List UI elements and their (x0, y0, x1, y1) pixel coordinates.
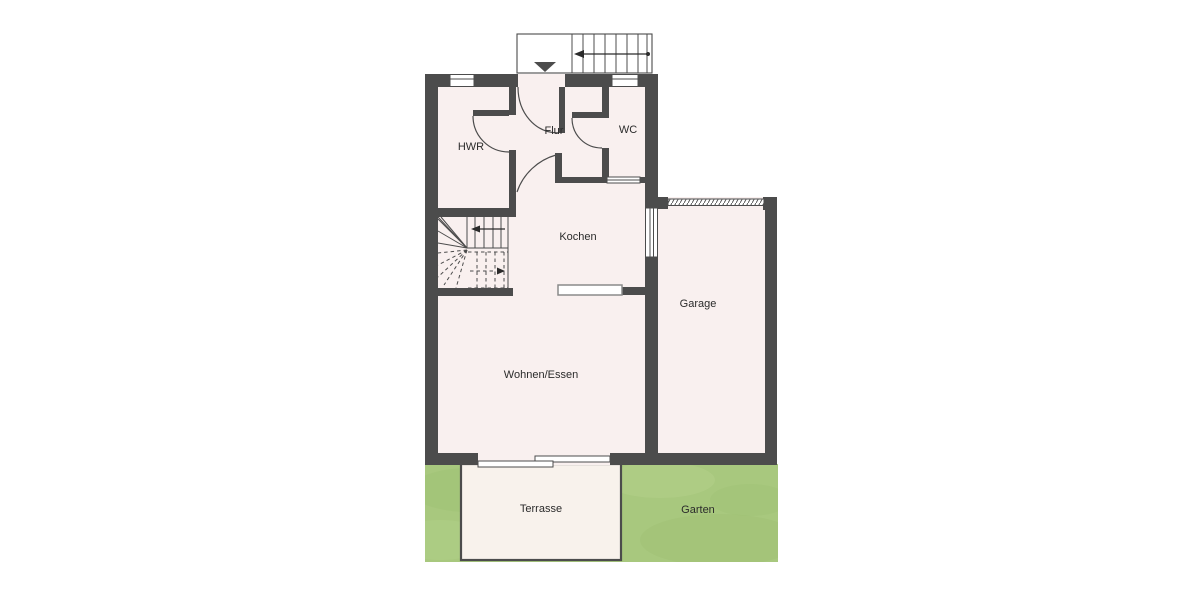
room-label-flur: Flur (545, 125, 564, 137)
room-label-hwr: HWR (458, 141, 484, 153)
building-floor (425, 74, 777, 465)
room-label-wohnen-essen: Wohnen/Essen (504, 369, 578, 381)
garage-door (668, 199, 764, 206)
floor-plan-svg: HWR Flur WC Kochen Garage Wohnen/Essen T… (0, 0, 1200, 600)
floor-plan-page: HWR Flur WC Kochen Garage Wohnen/Essen T… (0, 0, 1200, 600)
wc-window (612, 75, 638, 87)
wc-partition-window (607, 177, 640, 183)
room-label-garage: Garage (680, 298, 717, 310)
hwr-window (450, 75, 474, 87)
room-label-garten: Garten (681, 504, 715, 516)
exterior-entrance-stairs (517, 34, 652, 73)
kitchen-side-window (646, 208, 658, 257)
kitchen-counter (558, 285, 622, 295)
room-label-wc: WC (619, 124, 637, 136)
room-label-kochen: Kochen (559, 231, 596, 243)
room-label-terrasse: Terrasse (520, 503, 562, 515)
